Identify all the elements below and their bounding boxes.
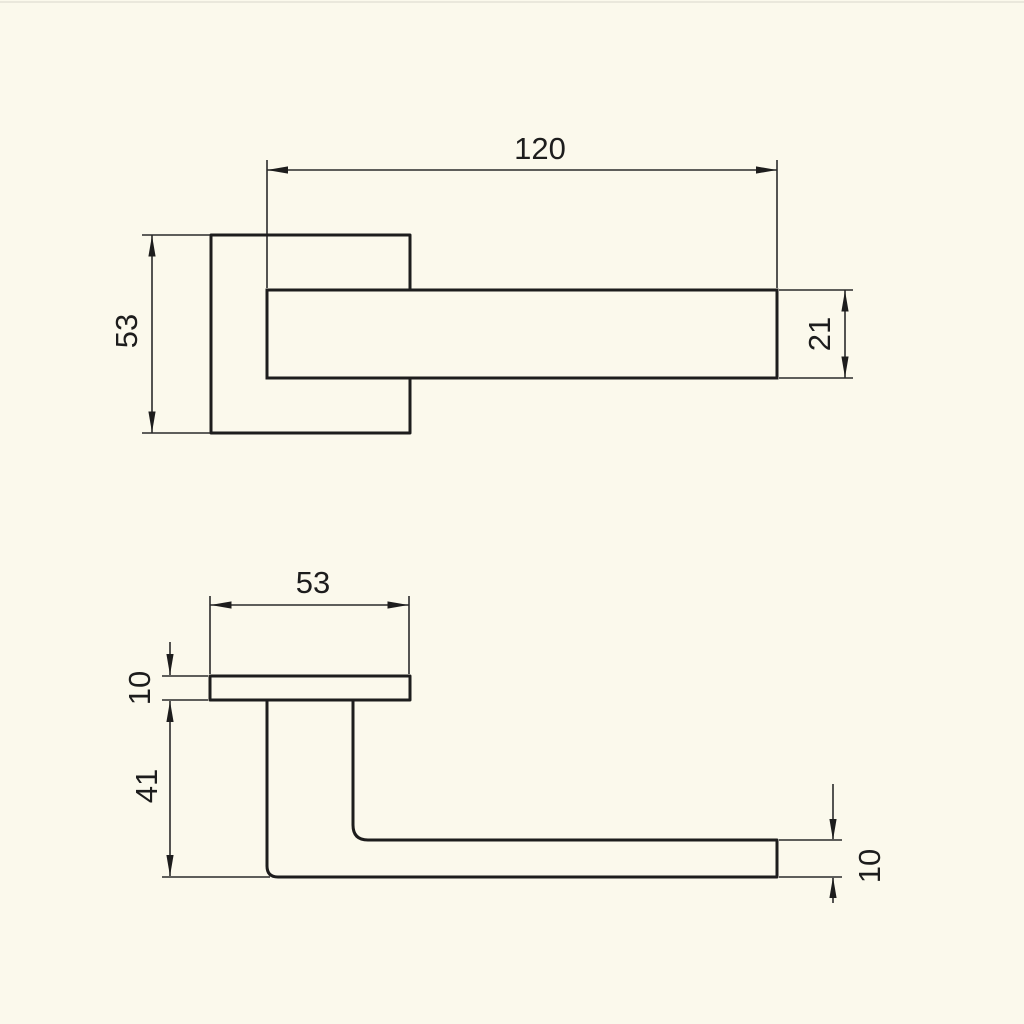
dimension-rosette-width: 53 [210, 565, 409, 674]
dimension-label: 10 [852, 849, 887, 883]
arrow-down-icon [148, 412, 155, 433]
arrow-down-icon [829, 819, 836, 840]
arrow-up-icon [829, 877, 836, 898]
arrow-left-icon [267, 166, 288, 173]
arrow-up-icon [841, 291, 848, 312]
dimension-label: 41 [129, 769, 164, 803]
dimension-label: 120 [514, 131, 566, 166]
rosette-side-outline [210, 676, 410, 700]
arrow-left-icon [211, 601, 232, 608]
arrow-down-icon [841, 357, 848, 378]
arrow-down-icon [166, 654, 173, 675]
dimension-lever-length: 120 [267, 131, 777, 288]
lever-front-outline [267, 290, 777, 378]
front-view: 120 53 21 [109, 131, 853, 433]
side-view: 53 10 41 10 [122, 565, 887, 903]
technical-drawing: 120 53 21 [0, 0, 1024, 1024]
dimension-rosette-size: 53 [109, 235, 210, 433]
dimension-label: 10 [122, 671, 157, 705]
dimension-lever-width: 21 [779, 290, 853, 378]
dimension-rosette-thickness: 10 [122, 642, 208, 705]
arrow-right-icon [756, 166, 777, 173]
handle-side-outline [267, 700, 777, 877]
arrow-down-icon [166, 855, 173, 876]
dimension-label: 53 [296, 565, 330, 600]
dimension-handle-height: 41 [129, 701, 270, 877]
arrow-right-icon [388, 601, 409, 608]
arrow-up-icon [166, 701, 173, 722]
dimension-lever-thickness: 10 [779, 784, 887, 903]
dimension-label: 21 [802, 317, 837, 351]
arrow-up-icon [148, 236, 155, 257]
dimension-label: 53 [109, 314, 144, 348]
